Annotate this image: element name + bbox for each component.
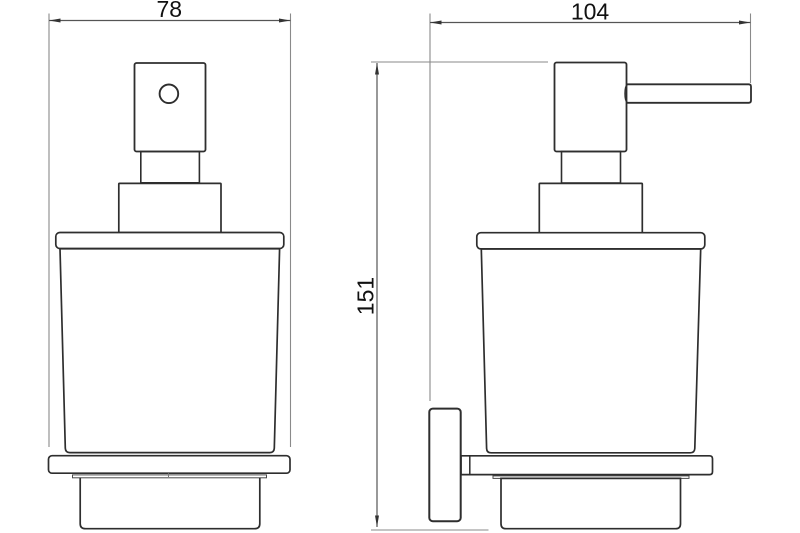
svg-text:78: 78: [157, 0, 183, 22]
svg-text:104: 104: [571, 0, 610, 25]
svg-text:151: 151: [352, 277, 378, 315]
